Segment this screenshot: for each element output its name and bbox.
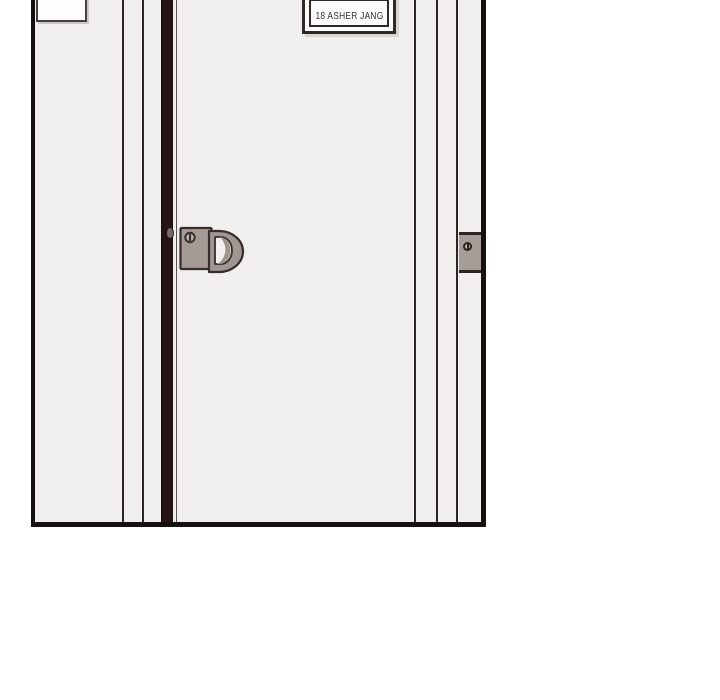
- name-plate: 18 ASHER JANG: [302, 0, 396, 34]
- name-plate-frame: 18 ASHER JANG: [309, 0, 389, 27]
- handle-plate: [181, 228, 212, 269]
- door-hinge: [459, 232, 481, 273]
- door-scene: 18 ASHER JANG: [35, 0, 481, 522]
- page: { "scene": { "type": "comic-panel-door",…: [0, 0, 720, 700]
- frame-line-1: [436, 0, 438, 522]
- wall-molding-line-1: [122, 0, 124, 522]
- empty-name-plate: [36, 0, 87, 22]
- door-handle: [176, 220, 248, 278]
- latch-bolt-icon: [166, 227, 174, 239]
- door-gap: [161, 0, 173, 522]
- door-right-edge-line: [414, 0, 416, 522]
- handle-screw-slot: [189, 234, 191, 241]
- wall-molding-line-2: [142, 0, 144, 522]
- name-plate-text: 18 ASHER JANG: [315, 5, 383, 22]
- frame-line-2: [456, 0, 458, 522]
- hinge-screw-icon: [463, 242, 472, 251]
- comic-panel: 18 ASHER JANG: [31, 0, 486, 527]
